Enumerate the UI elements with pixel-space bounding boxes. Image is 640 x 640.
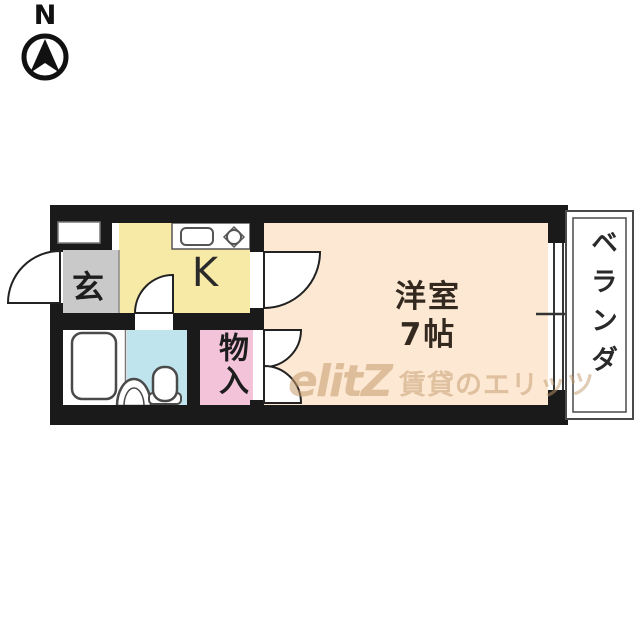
watermark-text: 賃貸のエリッツ <box>399 372 595 404</box>
toilet-icon <box>149 367 181 404</box>
floor-plan: elitZ 賃貸のエリッツ N 玄 K 洋室 7帖 物入 ベランダ <box>0 0 640 640</box>
floor-plan-graphics <box>0 0 640 640</box>
room-label-western-name: 洋室 <box>328 278 528 316</box>
room-label-genkan: 玄 <box>68 262 108 308</box>
room-label-western: 洋室 7帖 <box>328 278 528 354</box>
kitchen-counter <box>172 223 250 249</box>
watermark: elitZ 賃貸のエリッツ <box>288 360 595 404</box>
north-compass-icon <box>24 36 66 78</box>
room-label-storage: 物入 <box>208 332 252 408</box>
entrance-door-arc <box>8 251 60 303</box>
room-label-veranda: ベランダ <box>582 228 621 398</box>
small-window <box>58 222 100 243</box>
bathtub-icon <box>72 333 116 399</box>
room-label-western-size: 7帖 <box>328 316 528 354</box>
kitchen-sink-icon <box>181 228 213 245</box>
watermark-logo: elitZ <box>288 360 391 404</box>
compass-north-label: N <box>30 0 60 31</box>
room-label-kitchen: K <box>183 250 227 296</box>
